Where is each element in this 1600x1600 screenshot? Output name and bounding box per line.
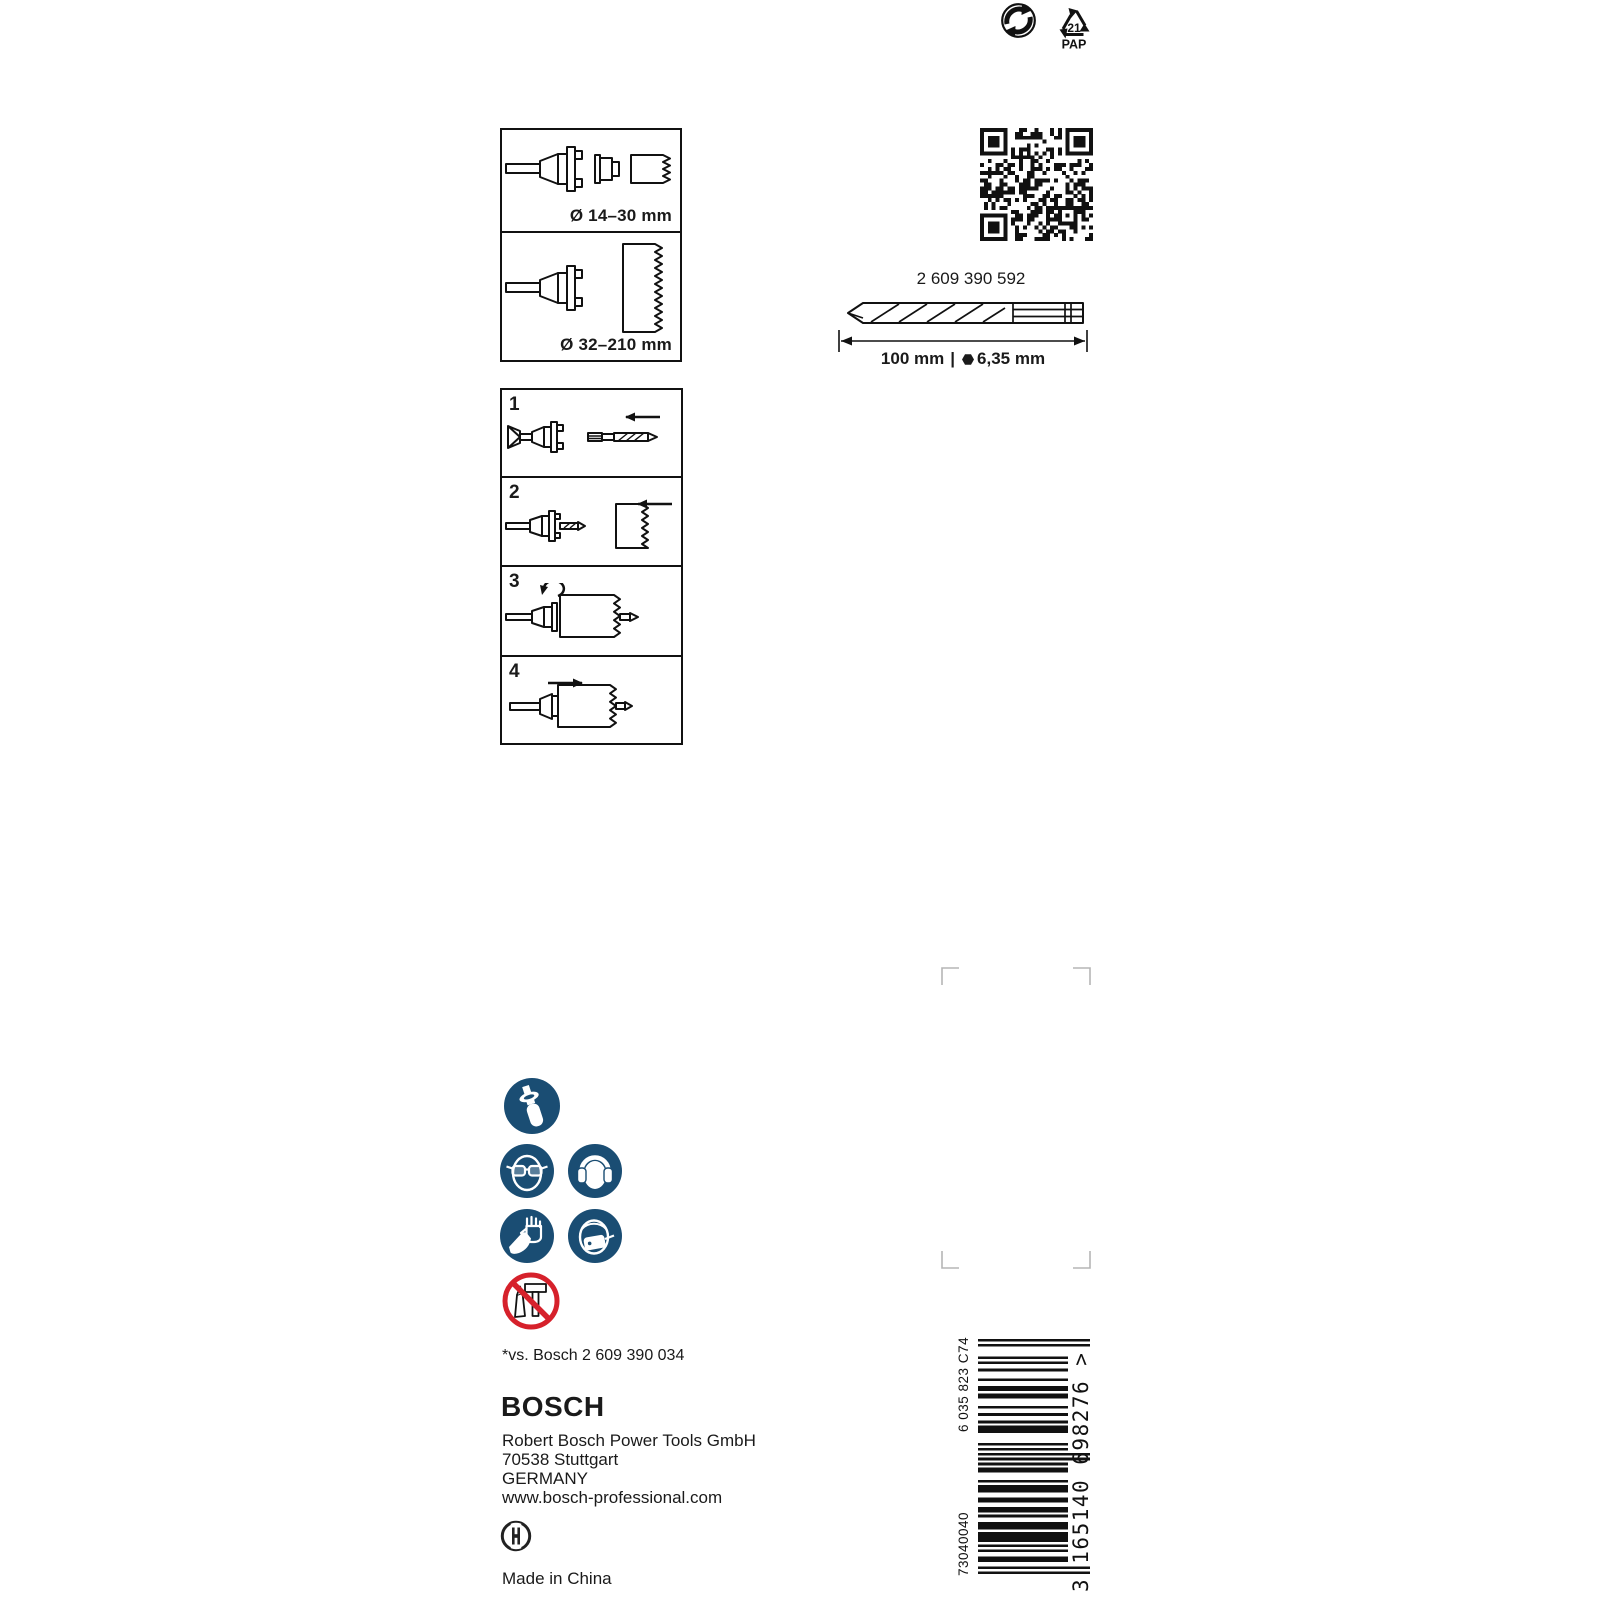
qr-code	[980, 128, 1093, 241]
manufacturer-address: Robert Bosch Power Tools GmbH 70538 Stut…	[502, 1431, 756, 1507]
comparison-footnote: *vs. Bosch 2 609 390 034	[502, 1347, 684, 1365]
barcode-order-code: 73040040	[956, 1512, 971, 1576]
step2-attach-holesaw-diagram	[504, 494, 679, 558]
wear-gloves-icon	[500, 1209, 554, 1263]
dimension-separator: |	[950, 349, 955, 368]
use-auxiliary-handle-icon	[504, 1078, 560, 1134]
length-value: 100 mm	[881, 349, 944, 368]
hex-shank-icon	[962, 354, 974, 365]
step-box-4: 4	[500, 655, 683, 745]
pilot-bit-part-number: 2 609 390 592	[886, 269, 1056, 289]
label-corner-marks	[938, 964, 1094, 1272]
bosch-armature-emblem	[499, 1519, 533, 1553]
address-line: GERMANY	[502, 1469, 756, 1488]
arbor-large-holesaw-diagram	[503, 239, 679, 337]
step-box-2: 2	[500, 476, 683, 567]
bosch-wordmark: BOSCH	[501, 1391, 605, 1423]
step3-screw-on-diagram	[504, 583, 679, 647]
pilot-bit-dimensions: 100 mm|6,35 mm	[845, 349, 1081, 369]
address-line: www.bosch-professional.com	[502, 1488, 756, 1507]
wear-eye-protection-icon	[500, 1144, 554, 1198]
pap-code: 21	[1067, 21, 1081, 35]
range-box-large: Ø 32–210 mm	[500, 231, 682, 362]
wear-ear-protection-icon	[568, 1144, 622, 1198]
range-box-small: Ø 14–30 mm	[500, 128, 682, 233]
step-box-3: 3	[500, 565, 683, 657]
made-in-label: Made in China	[502, 1569, 612, 1589]
arbor-small-holesaw-diagram	[503, 138, 679, 200]
hex-size-value: 6,35 mm	[977, 349, 1045, 368]
assembly-steps: 1	[500, 388, 683, 745]
pap-recycling-icon: 21 PAP	[1050, 0, 1096, 50]
address-line: 70538 Stuttgart	[502, 1450, 756, 1469]
pilot-drill-bit-drawing	[845, 297, 1090, 329]
packaging-back-panel: 21 PAP Ø 14–30 mm	[0, 0, 1600, 1600]
pap-label: PAP	[1062, 38, 1087, 51]
step-box-1: 1	[500, 388, 683, 478]
ean-number: 3 165140 698276 >	[1069, 1330, 1093, 1592]
green-dot-icon	[1000, 2, 1037, 39]
no-hammer-blows-prohibition-icon	[501, 1271, 561, 1331]
address-line: Robert Bosch Power Tools GmbH	[502, 1431, 756, 1450]
range-label-large: Ø 32–210 mm	[560, 335, 672, 355]
step4-assembled-diagram	[504, 673, 679, 735]
step1-insert-pilot-diagram	[504, 406, 679, 468]
range-label-small: Ø 14–30 mm	[570, 206, 672, 226]
barcode-batch-code: 6 035 823 C74	[956, 1339, 971, 1432]
wear-dust-mask-icon	[568, 1209, 622, 1263]
